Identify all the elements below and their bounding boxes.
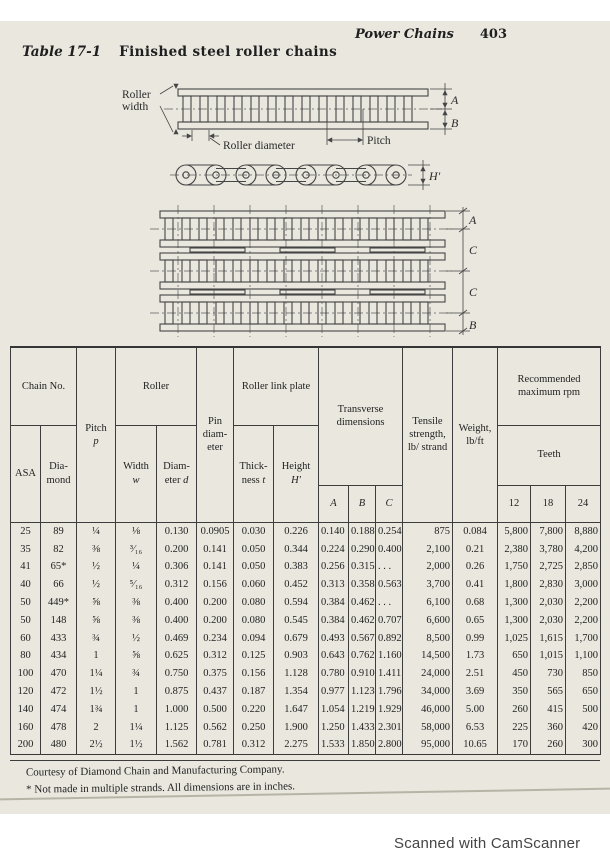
cell: 89 (41, 522, 77, 540)
cell: 450 (498, 665, 531, 683)
cell: 6,600 (403, 611, 453, 629)
cell: 0.080 (234, 594, 274, 612)
cell: 14,500 (403, 647, 453, 665)
col-header-roller: Roller (116, 347, 197, 425)
cell: ⁵⁄₁₆ (116, 576, 157, 594)
cell: 8,500 (403, 629, 453, 647)
cell: 58,000 (403, 718, 453, 736)
cell: 1.850 (349, 736, 376, 754)
dim-label-b: B (469, 318, 477, 332)
table-row: 4066½⁵⁄₁₆0.3120.1560.0600.4520.3130.3580… (11, 576, 601, 594)
cell: 480 (41, 736, 77, 754)
cell: 0.903 (274, 647, 319, 665)
cell: ³⁄₁₆ (116, 540, 157, 558)
cell: 24,000 (403, 665, 453, 683)
cell: . . . (376, 558, 403, 576)
cell: 0.313 (319, 576, 349, 594)
cell: 1.411 (376, 665, 403, 683)
cell: 0.030 (234, 522, 274, 540)
cell: 160 (11, 718, 41, 736)
cell: 148 (41, 611, 77, 629)
col-header-teeth-24: 24 (566, 485, 601, 522)
cell: ½ (77, 576, 116, 594)
cell: 2.800 (376, 736, 403, 754)
cell: 0.130 (157, 522, 197, 540)
cell: 1,750 (498, 558, 531, 576)
cell: 0.290 (349, 540, 376, 558)
cell: 0.400 (376, 540, 403, 558)
camscanner-credit: Scanned with CamScanner (394, 835, 580, 852)
cell: 0.500 (197, 700, 234, 718)
cell: 650 (498, 647, 531, 665)
cell: 2,100 (403, 540, 453, 558)
cell: 1.000 (157, 700, 197, 718)
cell: 0.140 (319, 522, 349, 540)
cell: 0.707 (376, 611, 403, 629)
cell: 1.433 (349, 718, 376, 736)
cell: 0.99 (453, 629, 498, 647)
dim-label-a: A (468, 213, 477, 227)
table-row: 2004802½1½1.5620.7810.3122.2751.5331.850… (11, 736, 601, 754)
cell: 0.562 (197, 718, 234, 736)
col-header-asa: ASA (11, 425, 41, 522)
cell: 0.234 (197, 629, 234, 647)
cell: 0.224 (319, 540, 349, 558)
cell: 0.200 (197, 611, 234, 629)
cell: 1½ (77, 683, 116, 701)
cell: 25 (11, 522, 41, 540)
cell: 0.200 (157, 540, 197, 558)
cell: 415 (531, 700, 566, 718)
cell: 1.123 (349, 683, 376, 701)
cell: 0.977 (319, 683, 349, 701)
cell: 0.594 (274, 594, 319, 612)
col-header-roller-link-plate: Roller link plate (234, 347, 319, 425)
dim-label-b: B (451, 116, 459, 130)
single-strand-chain-diagram: A B Roller width Roller diameter Pitch (120, 83, 465, 203)
footnotes: Courtesy of Diamond Chain and Manufactur… (26, 761, 295, 797)
cell: 0.141 (197, 540, 234, 558)
cell: 0.312 (234, 736, 274, 754)
table-row: 50449*⅝⅜0.4000.2000.0800.5940.3840.462. … (11, 594, 601, 612)
cell: 2.275 (274, 736, 319, 754)
roller-chain-table: Chain No. Pitchp Roller Pin diam-eter Ro… (10, 346, 601, 755)
cell: 0.762 (349, 647, 376, 665)
dim-label-c2: C (469, 285, 478, 299)
cell: 0.220 (234, 700, 274, 718)
cell: 35 (11, 540, 41, 558)
cell: 1 (116, 700, 157, 718)
cell: 41 (11, 558, 41, 576)
col-header-pin-diameter: Pin diam-eter (197, 347, 234, 522)
cell: ¾ (77, 629, 116, 647)
cell: 0.315 (349, 558, 376, 576)
cell: 0.094 (234, 629, 274, 647)
cell: 5.00 (453, 700, 498, 718)
col-header-diameter: Diam-eter d (157, 425, 197, 522)
dim-label-a: A (450, 93, 459, 107)
col-header-transverse-dimensions: Transverse dimensions (319, 347, 403, 485)
col-header-thickness: Thick-ness t (234, 425, 274, 522)
triple-strand-chain-diagram: A C C B (150, 205, 480, 345)
cell: 1¼ (116, 718, 157, 736)
table-row: 16047821¼1.1250.5620.2501.9001.2501.4332… (11, 718, 601, 736)
cell: 2,380 (498, 540, 531, 558)
cell: 80 (11, 647, 41, 665)
cell: 0.156 (197, 576, 234, 594)
cell: 200 (11, 736, 41, 754)
cell: 1.219 (349, 700, 376, 718)
cell: 0.26 (453, 558, 498, 576)
cell: 1 (116, 683, 157, 701)
cell: 650 (566, 683, 601, 701)
cell: 1.796 (376, 683, 403, 701)
cell: 850 (566, 665, 601, 683)
cell: 0.250 (234, 718, 274, 736)
cell: 2,200 (566, 594, 601, 612)
cell: 140 (11, 700, 41, 718)
table-row: 50148⅝⅜0.4000.2000.0800.5450.3840.4620.7… (11, 611, 601, 629)
cell: 0.200 (197, 594, 234, 612)
col-header-height: Height H′ (274, 425, 319, 522)
table-row: 3582⅜³⁄₁₆0.2000.1410.0500.3440.2240.2900… (11, 540, 601, 558)
cell: 433 (41, 629, 77, 647)
cell: ⅝ (77, 611, 116, 629)
cell: 360 (531, 718, 566, 736)
cell: 65* (41, 558, 77, 576)
table-row: 1404741¾11.0000.5000.2201.6471.0541.2191… (11, 700, 601, 718)
dim-label-c1: C (469, 243, 478, 257)
cell: 0.306 (157, 558, 197, 576)
col-header-teeth: Teeth (498, 425, 601, 485)
cell: 3.69 (453, 683, 498, 701)
cell: ⅛ (116, 522, 157, 540)
cell: 730 (531, 665, 566, 683)
cell: 225 (498, 718, 531, 736)
label-pitch: Pitch (367, 135, 391, 147)
cell: 300 (566, 736, 601, 754)
cell: 0.493 (319, 629, 349, 647)
table-row: 2589¼⅛0.1300.09050.0300.2260.1400.1880.2… (11, 522, 601, 540)
cell: 1.562 (157, 736, 197, 754)
cell: 0.563 (376, 576, 403, 594)
cell: 0.375 (197, 665, 234, 683)
cell: 0.344 (274, 540, 319, 558)
cell: 0.21 (453, 540, 498, 558)
cell: 0.910 (349, 665, 376, 683)
table-body: 2589¼⅛0.1300.09050.0300.2260.1400.1880.2… (11, 522, 601, 754)
cell: ½ (77, 558, 116, 576)
cell: ⅜ (77, 540, 116, 558)
cell: 2,830 (531, 576, 566, 594)
cell: 0.643 (319, 647, 349, 665)
cell: 82 (41, 540, 77, 558)
col-header-chain-no: Chain No. (11, 347, 77, 425)
cell: 0.0905 (197, 522, 234, 540)
table-bottom-rule (10, 760, 600, 761)
cell: 0.384 (319, 611, 349, 629)
cell: 0.084 (453, 522, 498, 540)
cell: 0.567 (349, 629, 376, 647)
cell: 0.254 (376, 522, 403, 540)
cell: 1¼ (77, 665, 116, 683)
cell: 0.875 (157, 683, 197, 701)
col-header-teeth-18: 18 (531, 485, 566, 522)
cell: 1.900 (274, 718, 319, 736)
col-header-diamond: Dia-mond (41, 425, 77, 522)
cell: ⅝ (77, 594, 116, 612)
cell: 0.462 (349, 611, 376, 629)
cell: 0.679 (274, 629, 319, 647)
cell: 6,100 (403, 594, 453, 612)
cell: 60 (11, 629, 41, 647)
cell: 0.060 (234, 576, 274, 594)
cell: 0.256 (319, 558, 349, 576)
cell: 2,200 (566, 611, 601, 629)
cell: 40 (11, 576, 41, 594)
cell: 0.68 (453, 594, 498, 612)
cell: 1½ (116, 736, 157, 754)
cell: 1,800 (498, 576, 531, 594)
col-header-pitch: Pitchp (77, 347, 116, 522)
cell: 1.647 (274, 700, 319, 718)
col-header-dim-c: C (376, 485, 403, 522)
cell: ½ (116, 629, 157, 647)
cell: 500 (566, 700, 601, 718)
cell: 0.469 (157, 629, 197, 647)
scanned-page: Power Chains 403 Table 17-1 Finished ste… (0, 21, 610, 814)
cell: 0.156 (234, 665, 274, 683)
cell: 0.141 (197, 558, 234, 576)
col-header-weight: Weight, lb/ft (453, 347, 498, 522)
cell: 3,000 (566, 576, 601, 594)
cell: 2,000 (403, 558, 453, 576)
cell: 0.625 (157, 647, 197, 665)
cell: 434 (41, 647, 77, 665)
cell: 0.050 (234, 540, 274, 558)
cell: 1¾ (77, 700, 116, 718)
cell: 50 (11, 594, 41, 612)
cell: 2½ (77, 736, 116, 754)
cell: 350 (498, 683, 531, 701)
cell: 1.160 (376, 647, 403, 665)
cell: 260 (498, 700, 531, 718)
cell: 0.383 (274, 558, 319, 576)
cell: 8,880 (566, 522, 601, 540)
col-header-dim-a: A (319, 485, 349, 522)
table-row: 1004701¼¾0.7500.3750.1561.1280.7800.9101… (11, 665, 601, 683)
label-roller-width-1: Roller (122, 89, 151, 101)
table-caption: Table 17-1 Finished steel roller chains (22, 44, 337, 60)
cell: 2 (77, 718, 116, 736)
cell: 2,030 (531, 611, 566, 629)
cell: 449* (41, 594, 77, 612)
cell: 478 (41, 718, 77, 736)
cell: 0.437 (197, 683, 234, 701)
cell: ¾ (116, 665, 157, 683)
table-caption-label: Table 17-1 (22, 44, 101, 60)
cell: 0.080 (234, 611, 274, 629)
cell: 3,700 (403, 576, 453, 594)
cell: 0.892 (376, 629, 403, 647)
cell: 10.65 (453, 736, 498, 754)
cell: 1.125 (157, 718, 197, 736)
cell: 170 (498, 736, 531, 754)
cell: 470 (41, 665, 77, 683)
cell: 0.452 (274, 576, 319, 594)
cell: 1,025 (498, 629, 531, 647)
cell: 1.054 (319, 700, 349, 718)
cell: 1,700 (566, 629, 601, 647)
cell: ⅜ (116, 594, 157, 612)
cell: 0.41 (453, 576, 498, 594)
cell: 0.400 (157, 594, 197, 612)
cell: 1.533 (319, 736, 349, 754)
table-row: 804341⅝0.6250.3120.1250.9030.6430.7621.1… (11, 647, 601, 665)
cell: 0.188 (349, 522, 376, 540)
cell: 0.312 (197, 647, 234, 665)
cell: 66 (41, 576, 77, 594)
label-roller-width-2: width (122, 101, 148, 113)
cell: 420 (566, 718, 601, 736)
cell: 2,850 (566, 558, 601, 576)
table-row: 1204721½10.8750.4370.1871.3540.9771.1231… (11, 683, 601, 701)
cell: 1.128 (274, 665, 319, 683)
cell: 2.51 (453, 665, 498, 683)
cell: 0.462 (349, 594, 376, 612)
cell: ¼ (77, 522, 116, 540)
cell: 0.750 (157, 665, 197, 683)
table-row: 4165*½¼0.3060.1410.0500.3830.2560.315. .… (11, 558, 601, 576)
col-header-width: Widthw (116, 425, 157, 522)
cell: 1 (77, 647, 116, 665)
cell: 0.384 (319, 594, 349, 612)
cell: 7,800 (531, 522, 566, 540)
cell: 1,615 (531, 629, 566, 647)
cell: 5,800 (498, 522, 531, 540)
table-caption-text: Finished steel roller chains (119, 44, 337, 60)
cell: 0.226 (274, 522, 319, 540)
cell: ⅝ (116, 647, 157, 665)
cell: 3,780 (531, 540, 566, 558)
running-header-title: Power Chains (355, 27, 454, 42)
cell: 260 (531, 736, 566, 754)
running-head: Power Chains 403 (355, 27, 507, 42)
cell: ⅜ (116, 611, 157, 629)
cell: 1,300 (498, 594, 531, 612)
cell: 1.250 (319, 718, 349, 736)
cell: 120 (11, 683, 41, 701)
cell: 0.358 (349, 576, 376, 594)
table-row: 60433¾½0.4690.2340.0940.6790.4930.5670.8… (11, 629, 601, 647)
cell: 0.65 (453, 611, 498, 629)
label-roller-diameter: Roller diameter (223, 140, 295, 152)
cell: 34,000 (403, 683, 453, 701)
cell: 565 (531, 683, 566, 701)
cell: 0.187 (234, 683, 274, 701)
col-header-dim-b: B (349, 485, 376, 522)
cell: 46,000 (403, 700, 453, 718)
cell: 472 (41, 683, 77, 701)
cell: 2,030 (531, 594, 566, 612)
cell: . . . (376, 594, 403, 612)
cell: 0.400 (157, 611, 197, 629)
cell: 474 (41, 700, 77, 718)
cell: 0.312 (157, 576, 197, 594)
cell: 1,015 (531, 647, 566, 665)
cell: 1.73 (453, 647, 498, 665)
cell: 0.545 (274, 611, 319, 629)
cell: 1,300 (498, 611, 531, 629)
cell: 0.781 (197, 736, 234, 754)
cell: 4,200 (566, 540, 601, 558)
cell: 2,725 (531, 558, 566, 576)
cell: 50 (11, 611, 41, 629)
cell: 100 (11, 665, 41, 683)
cell: 0.125 (234, 647, 274, 665)
cell: ¼ (116, 558, 157, 576)
col-header-recommended-rpm: Recommended maximum rpm (498, 347, 601, 425)
col-header-tensile-strength: Tensile strength, lb/ strand (403, 347, 453, 522)
cell: 2.301 (376, 718, 403, 736)
page-number: 403 (480, 27, 507, 42)
col-header-teeth-12: 12 (498, 485, 531, 522)
cell: 6.53 (453, 718, 498, 736)
cell: 875 (403, 522, 453, 540)
dim-label-h: H′ (428, 169, 441, 183)
cell: 95,000 (403, 736, 453, 754)
cell: 1.354 (274, 683, 319, 701)
cell: 1,100 (566, 647, 601, 665)
cell: 0.780 (319, 665, 349, 683)
cell: 1.929 (376, 700, 403, 718)
cell: 0.050 (234, 558, 274, 576)
